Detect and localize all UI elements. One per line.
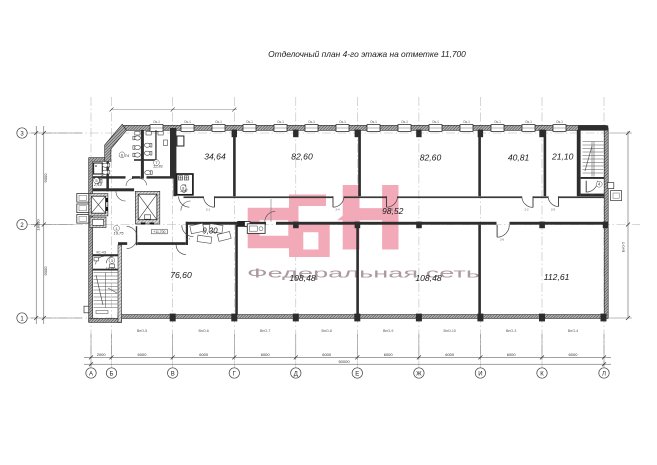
svg-text:Ок-1: Ок-1 [184, 120, 191, 124]
svg-text:ВнО-5: ВнО-5 [622, 242, 626, 252]
svg-text:ВнО-8: ВнО-8 [322, 329, 332, 333]
svg-text:2-7: 2-7 [186, 237, 190, 241]
svg-text:ВнО-10: ВнО-10 [444, 329, 456, 333]
svg-text:6000: 6000 [199, 352, 209, 357]
svg-text:34,64: 34,64 [204, 152, 226, 162]
svg-text:К: К [540, 371, 544, 377]
svg-text:+11,700: +11,700 [153, 230, 165, 234]
svg-text:6000: 6000 [445, 352, 455, 357]
svg-text:2000: 2000 [97, 352, 107, 357]
svg-text:И: И [478, 371, 482, 377]
svg-text:Ок-1: Ок-1 [308, 120, 315, 124]
svg-text:Ок-1: Ок-1 [215, 120, 222, 124]
svg-text:ВнО-3: ВнО-3 [506, 329, 516, 333]
svg-text:ВнО-6: ВнО-6 [199, 329, 209, 333]
svg-text:ВнО-7: ВнО-7 [260, 329, 270, 333]
svg-text:Федеральная сеть: Федеральная сеть [247, 266, 480, 281]
svg-text:6000: 6000 [569, 352, 579, 357]
svg-text:Ок-1: Ок-1 [339, 120, 346, 124]
svg-text:50000: 50000 [338, 359, 350, 364]
svg-text:6000: 6000 [322, 352, 332, 357]
svg-text:112,61: 112,61 [544, 272, 570, 282]
svg-text:Ок-1: Ок-1 [463, 120, 470, 124]
svg-text:Е: Е [355, 371, 359, 377]
svg-text:18000: 18000 [36, 219, 41, 231]
svg-text:Отделочный план 4-го этажа на: Отделочный план 4-го этажа на отметке 11… [268, 49, 466, 59]
svg-text:2-5: 2-5 [551, 208, 555, 212]
svg-text:82,60: 82,60 [291, 152, 313, 162]
svg-text:Ок-1: Ок-1 [432, 120, 439, 124]
svg-text:Ок-1: Ок-1 [494, 120, 501, 124]
svg-text:В: В [171, 371, 175, 377]
svg-text:2-4: 2-4 [335, 208, 339, 212]
svg-text:Л: Л [602, 371, 606, 377]
svg-text:108,48: 108,48 [289, 273, 316, 283]
svg-text:6000: 6000 [261, 352, 271, 357]
svg-text:Ок-1: Ок-1 [246, 120, 253, 124]
svg-text:Ок-1: Ок-1 [401, 120, 408, 124]
svg-text:76,60: 76,60 [170, 270, 192, 280]
svg-text:6000: 6000 [384, 352, 394, 357]
svg-text:3-4: 3-4 [590, 193, 594, 197]
svg-text:9,30: 9,30 [202, 227, 218, 236]
svg-text:2-6: 2-6 [500, 238, 504, 242]
svg-text:ВнО-9: ВнО-9 [383, 329, 393, 333]
svg-text:108,48: 108,48 [415, 273, 442, 283]
svg-text:Ж: Ж [416, 371, 422, 377]
svg-text:15,90: 15,90 [106, 266, 117, 271]
svg-text:2-1: 2-1 [206, 208, 210, 212]
svg-text:Ок-1: Ок-1 [525, 120, 532, 124]
svg-text:Ок-1: Ок-1 [153, 120, 160, 124]
svg-text:21,10: 21,10 [551, 152, 574, 162]
svg-text:6000: 6000 [138, 352, 148, 357]
svg-text:А: А [89, 371, 93, 377]
svg-text:ВнО-5: ВнО-5 [137, 329, 147, 333]
svg-text:Д: Д [294, 371, 298, 377]
svg-text:82,60: 82,60 [420, 153, 442, 163]
svg-text:КС-4Э: КС-4Э [97, 250, 107, 254]
svg-text:6000: 6000 [507, 352, 517, 357]
svg-text:19,75: 19,75 [114, 231, 125, 236]
svg-text:Ок-1: Ок-1 [370, 120, 377, 124]
svg-text:ВнО-4: ВнО-4 [568, 329, 578, 333]
svg-text:Б: Б [110, 371, 114, 377]
svg-text:2-2: 2-2 [524, 208, 528, 212]
svg-text:Ок-1: Ок-1 [277, 120, 284, 124]
svg-text:9000: 9000 [43, 173, 48, 183]
svg-text:9000: 9000 [43, 266, 48, 276]
svg-text:2-3: 2-3 [389, 208, 393, 212]
svg-text:40,81: 40,81 [508, 153, 530, 163]
svg-text:Ок-1: Ок-1 [556, 120, 563, 124]
